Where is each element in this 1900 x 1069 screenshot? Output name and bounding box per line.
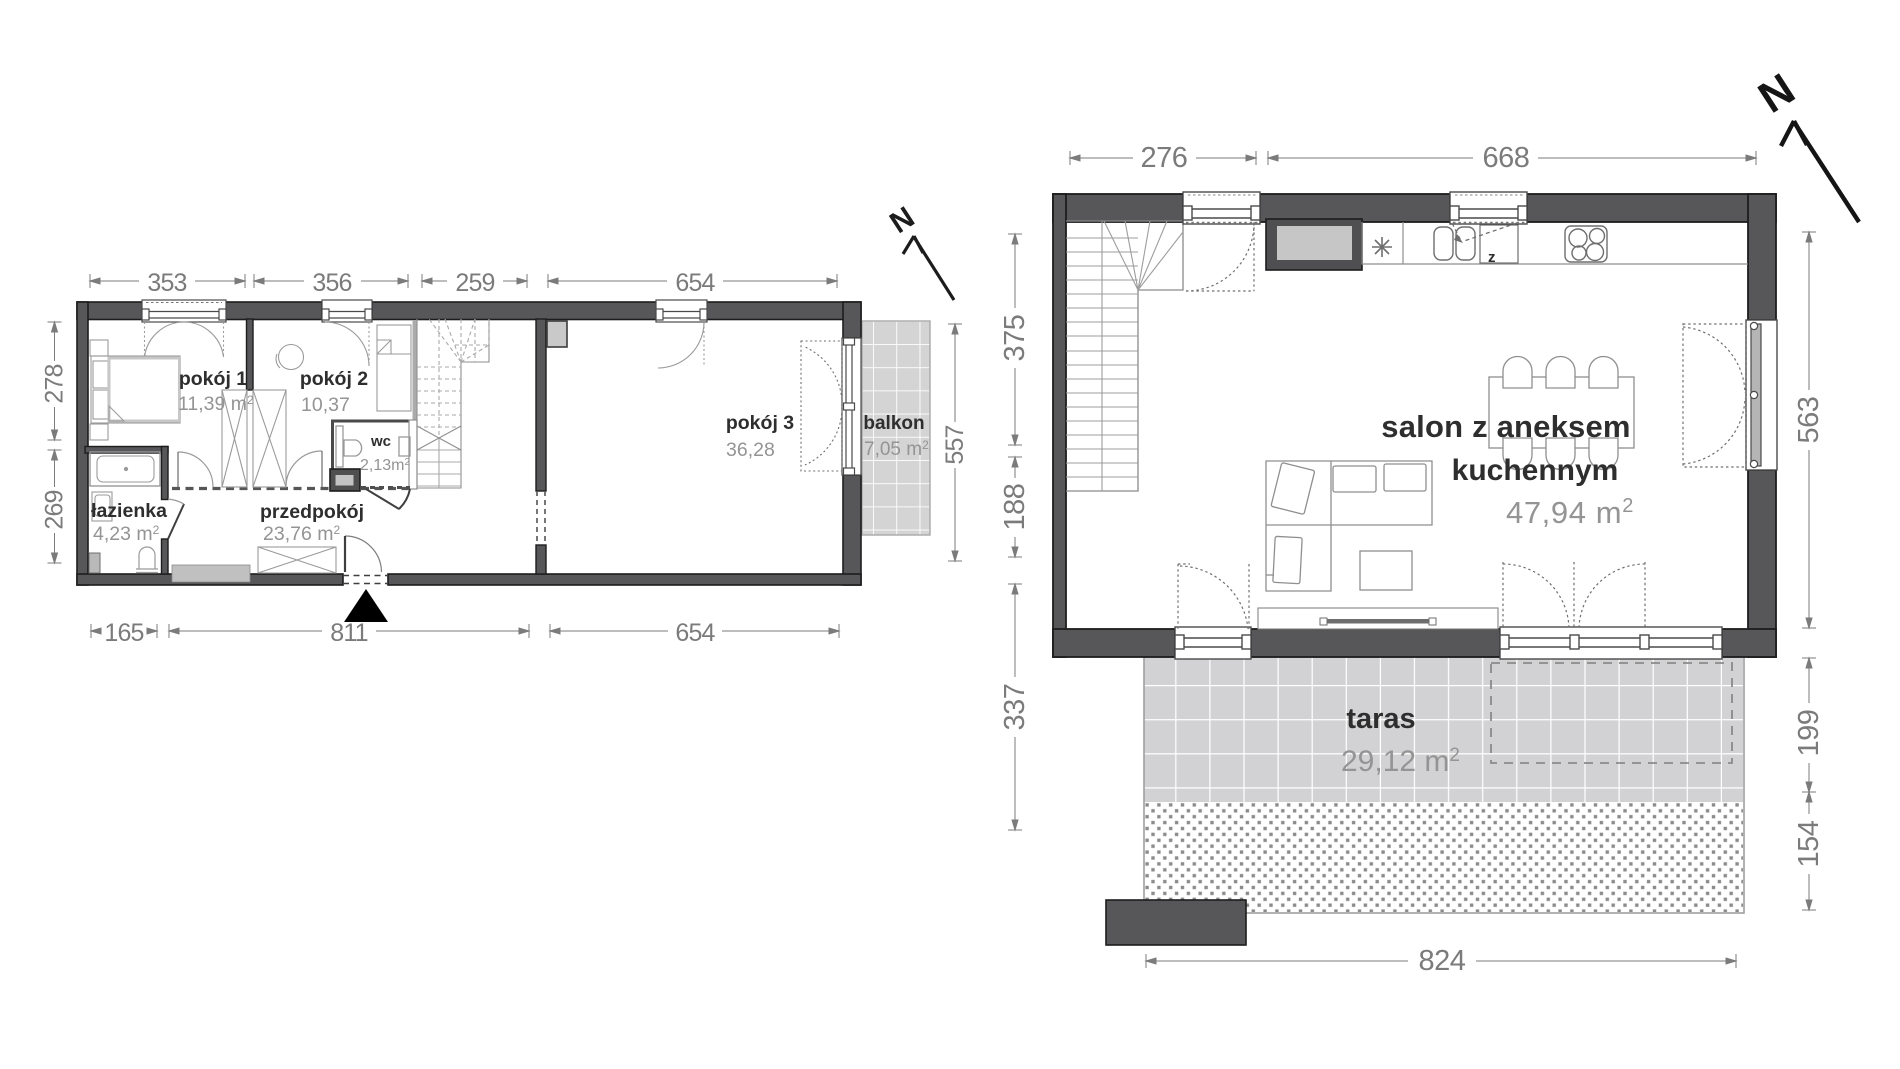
svg-text:47,94 m2: 47,94 m2 [1506, 495, 1634, 530]
svg-text:11,39 m2: 11,39 m2 [178, 393, 254, 415]
svg-text:278: 278 [41, 364, 69, 403]
svg-text:337: 337 [999, 684, 1031, 731]
svg-text:199: 199 [1793, 710, 1825, 757]
svg-text:259: 259 [455, 269, 494, 297]
svg-text:pokój 1: pokój 1 [179, 368, 247, 390]
svg-text:4,23 m2: 4,23 m2 [93, 523, 160, 545]
svg-text:276: 276 [1141, 142, 1188, 174]
svg-text:165: 165 [104, 619, 143, 647]
svg-text:kuchennym: kuchennym [1452, 454, 1619, 487]
svg-text:29,12 m2: 29,12 m2 [1341, 745, 1460, 778]
svg-text:wc: wc [370, 433, 391, 450]
svg-text:pokój 2: pokój 2 [300, 368, 368, 390]
svg-text:654: 654 [675, 269, 715, 297]
svg-text:356: 356 [312, 269, 351, 297]
svg-text:188: 188 [999, 484, 1031, 531]
svg-text:811: 811 [330, 619, 367, 647]
svg-text:154: 154 [1793, 820, 1825, 867]
svg-text:z: z [1488, 249, 1496, 266]
svg-text:łazienka: łazienka [91, 500, 167, 522]
svg-text:przedpokój: przedpokój [260, 501, 364, 523]
svg-text:pokój 3: pokój 3 [726, 412, 794, 434]
svg-text:36,28: 36,28 [726, 439, 775, 461]
svg-text:654: 654 [675, 619, 715, 647]
svg-text:2,13m2: 2,13m2 [360, 457, 410, 474]
svg-text:353: 353 [147, 269, 186, 297]
svg-text:taras: taras [1346, 703, 1415, 735]
svg-text:563: 563 [1793, 397, 1825, 444]
svg-text:7,05 m2: 7,05 m2 [864, 438, 929, 460]
svg-text:balkon: balkon [863, 413, 924, 434]
svg-text:375: 375 [999, 315, 1031, 362]
svg-text:salon z aneksem: salon z aneksem [1381, 409, 1630, 444]
svg-text:10,37: 10,37 [301, 394, 350, 416]
svg-text:668: 668 [1483, 142, 1530, 174]
svg-text:23,76 m2: 23,76 m2 [263, 523, 340, 545]
svg-text:557: 557 [941, 425, 969, 464]
svg-text:269: 269 [41, 490, 69, 529]
svg-text:824: 824 [1419, 945, 1466, 977]
